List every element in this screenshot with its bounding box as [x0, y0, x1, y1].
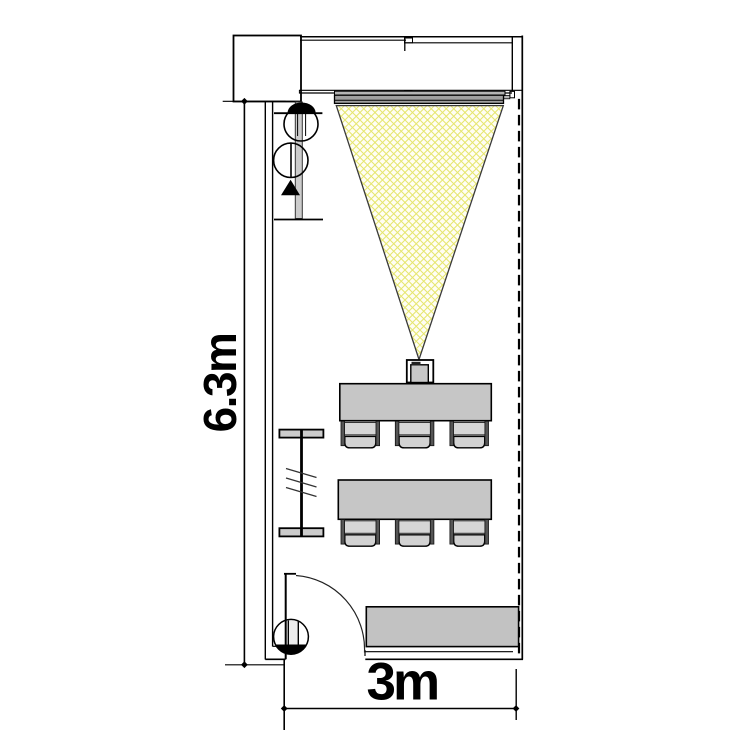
- svg-text:6.3m: 6.3m: [194, 334, 246, 433]
- svg-text:3m: 3m: [367, 653, 438, 712]
